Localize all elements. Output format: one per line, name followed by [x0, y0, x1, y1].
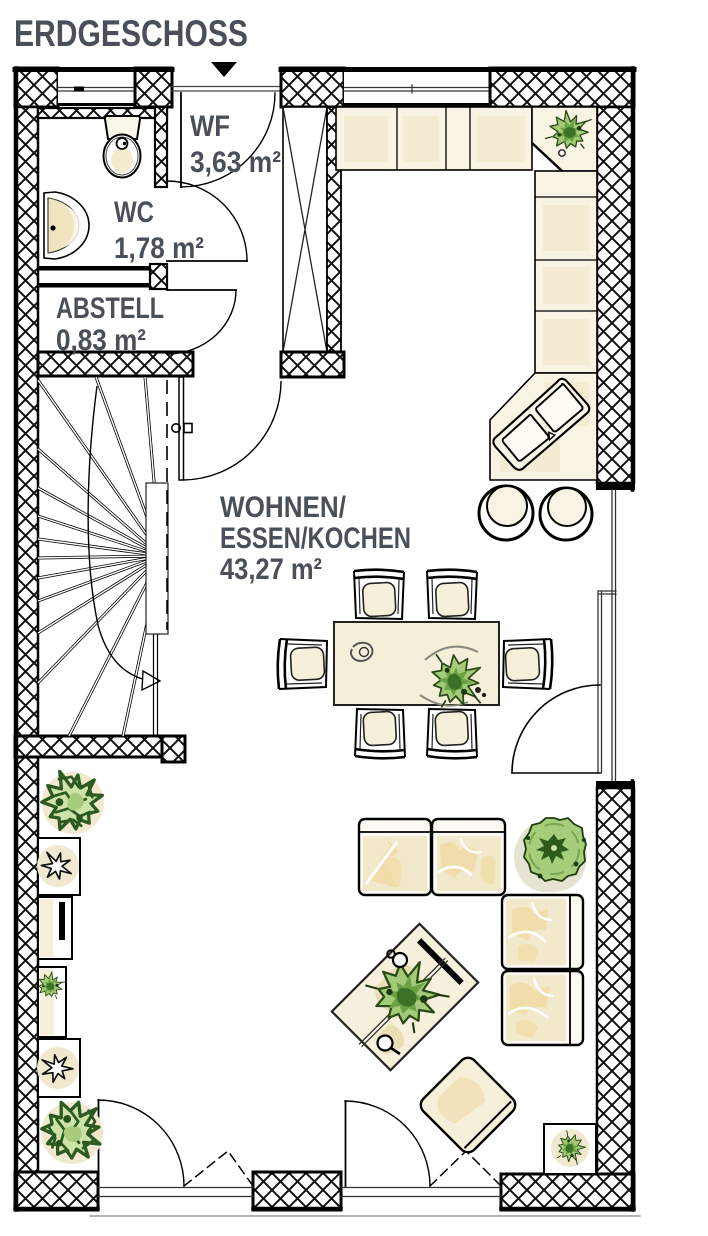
svg-text:WF: WF — [190, 110, 230, 143]
svg-text:ESSEN/KOCHEN: ESSEN/KOCHEN — [220, 522, 411, 555]
svg-text:43,27 m²: 43,27 m² — [220, 553, 322, 586]
svg-text:WOHNEN/: WOHNEN/ — [220, 491, 347, 524]
svg-text:3,63 m²: 3,63 m² — [190, 146, 281, 179]
svg-text:0,83 m²: 0,83 m² — [56, 324, 146, 357]
svg-text:WC: WC — [114, 196, 154, 229]
svg-text:1,78 m²: 1,78 m² — [114, 232, 204, 265]
svg-text:ABSTELL: ABSTELL — [56, 292, 164, 325]
svg-text:ERDGESCHOSS: ERDGESCHOSS — [14, 13, 248, 54]
